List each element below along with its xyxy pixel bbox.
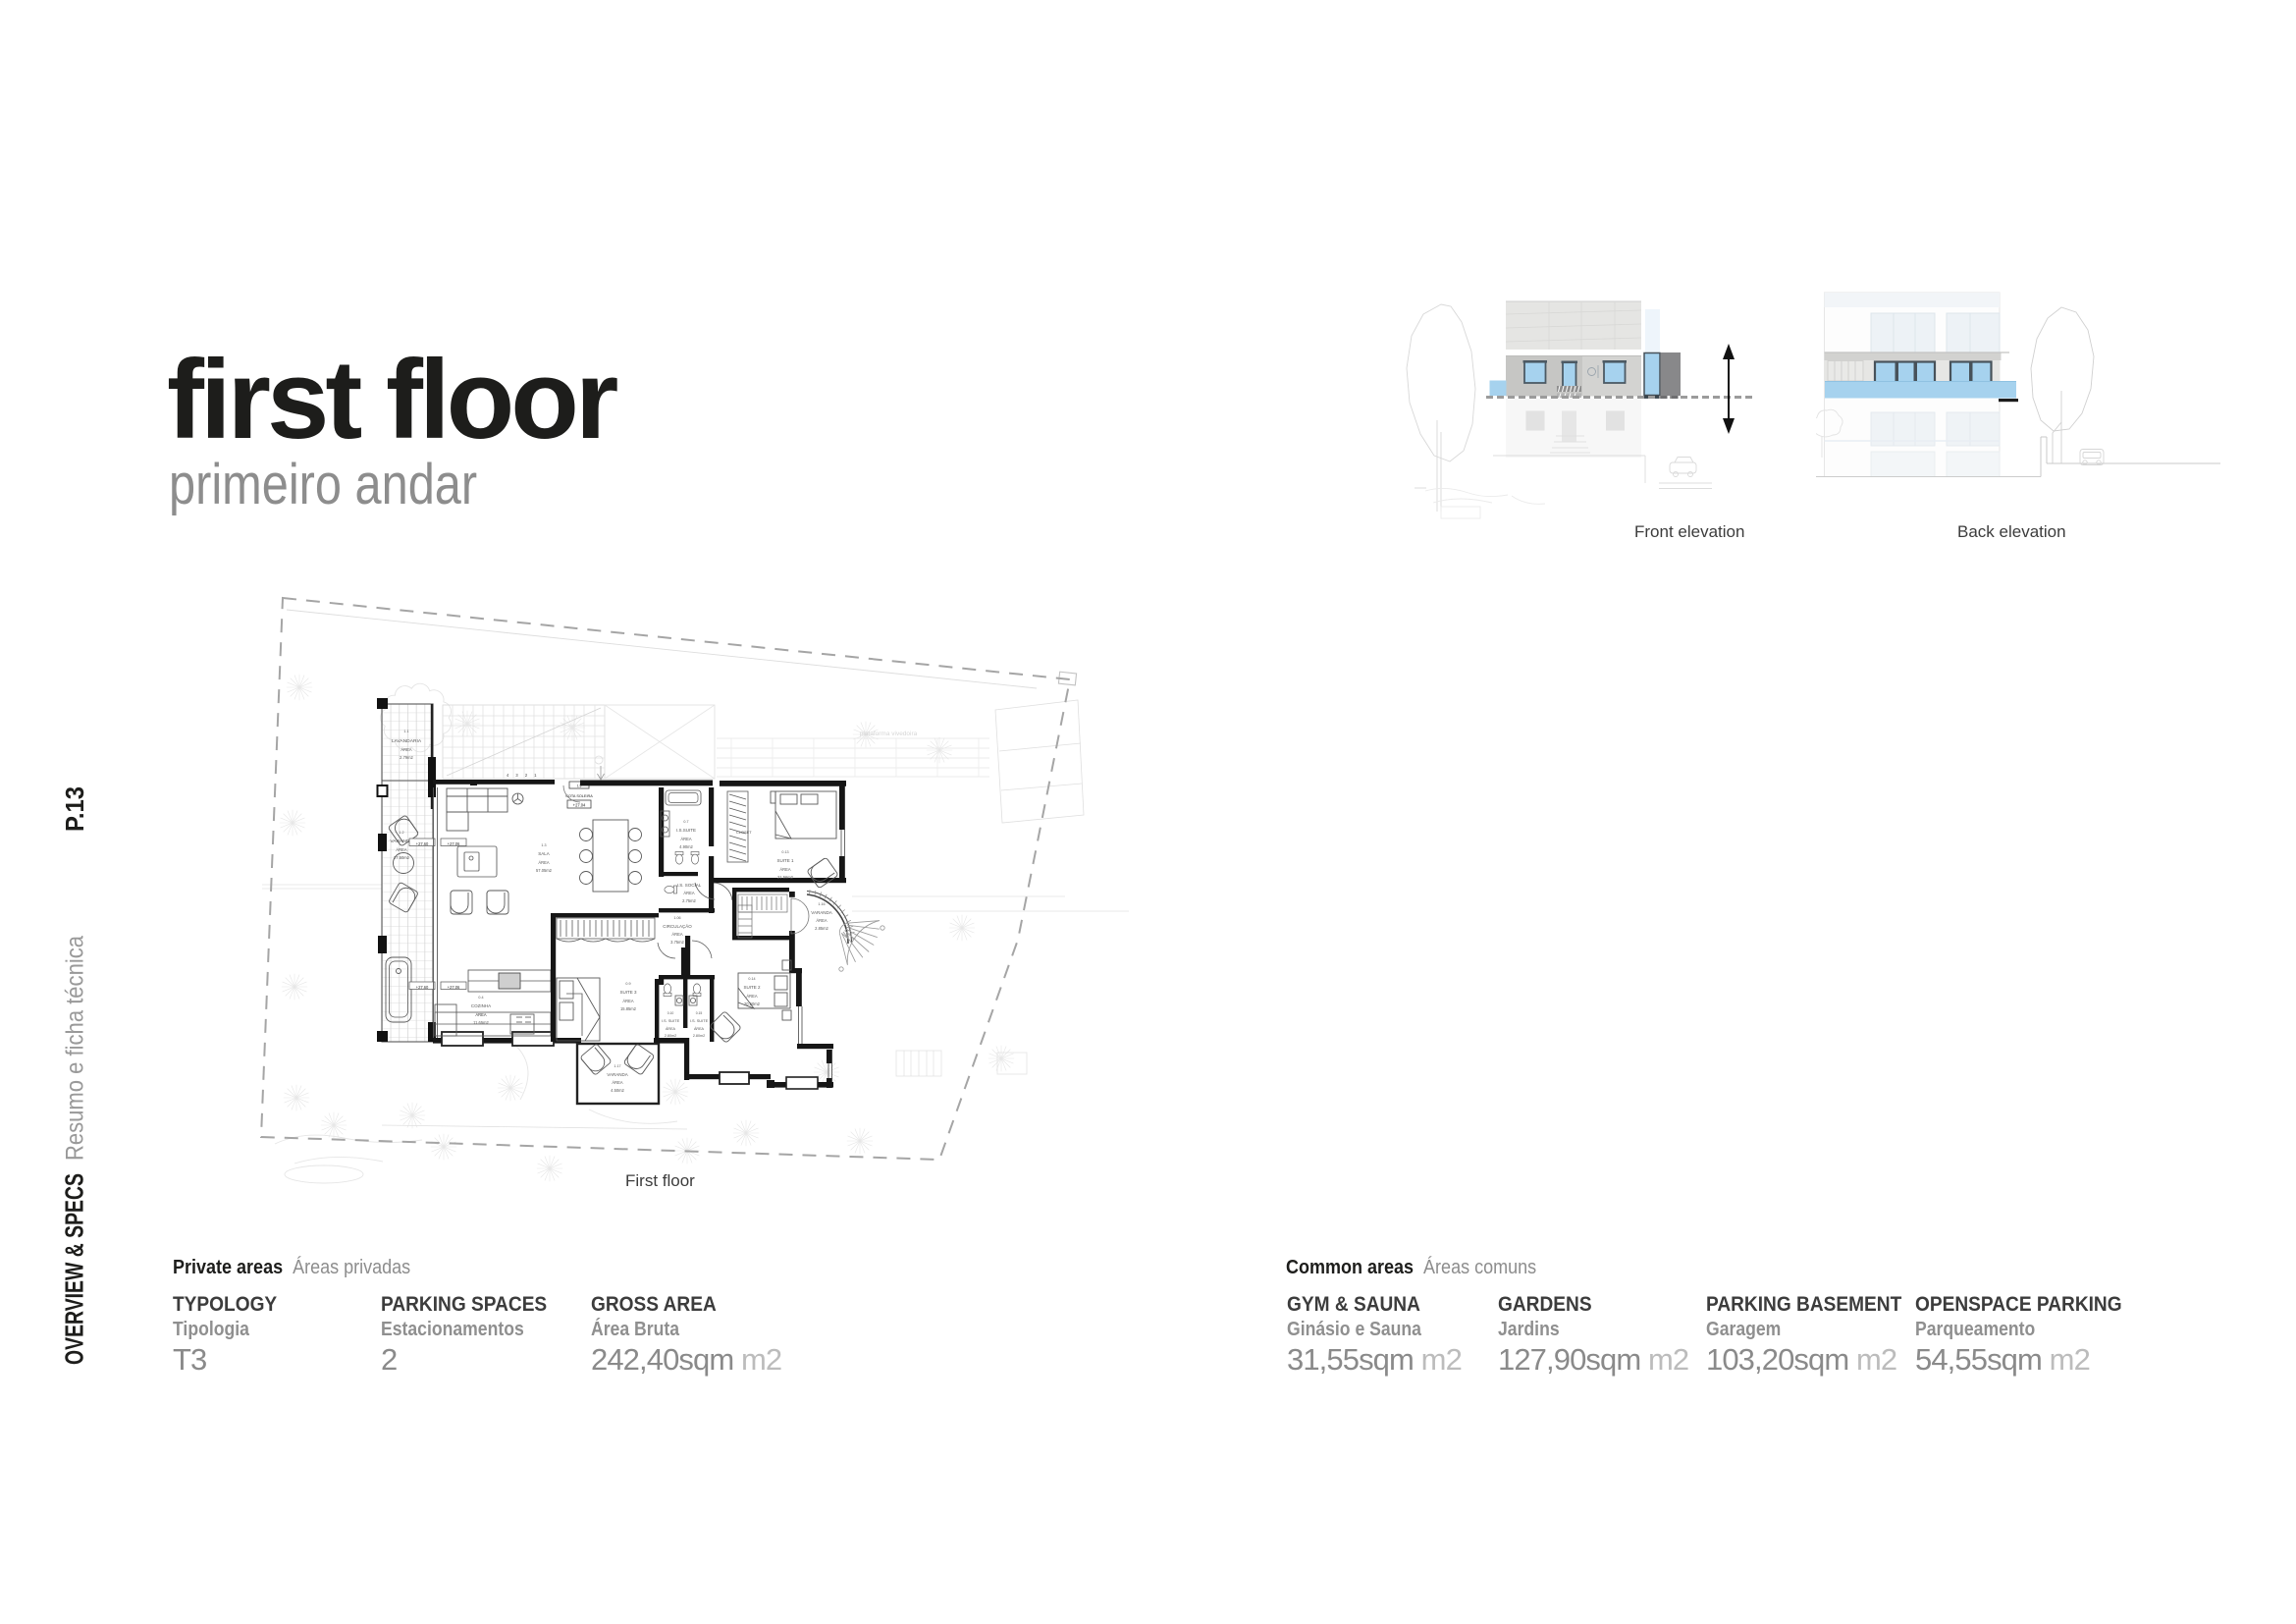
svg-text:1.1: 1.1 (403, 730, 408, 733)
svg-text:0.7: 0.7 (683, 820, 688, 824)
svg-text:VARANDA: VARANDA (811, 910, 831, 915)
svg-text:ÁREA: ÁREA (746, 994, 757, 999)
svg-text:COTA SOLEIRA: COTA SOLEIRA (565, 794, 593, 798)
svg-text:2.85m2: 2.85m2 (815, 926, 828, 931)
svg-text:+27.60: +27.60 (416, 985, 429, 990)
svg-text:I.S.SUITE: I.S.SUITE (676, 828, 696, 833)
svg-text:ÁREA: ÁREA (683, 891, 694, 895)
svg-text:2.75m2: 2.75m2 (682, 898, 696, 903)
svg-text:COZINHA: COZINHA (471, 1003, 491, 1008)
svg-text:ÁREA: ÁREA (612, 1080, 622, 1085)
svg-text:CIRCULAÇÃO: CIRCULAÇÃO (663, 923, 692, 929)
svg-text:SUITE 1: SUITE 1 (776, 858, 794, 863)
svg-text:VARANDA: VARANDA (607, 1072, 627, 1077)
svg-text:SUITE 3: SUITE 3 (619, 990, 637, 995)
svg-text:+27.06: +27.06 (448, 985, 460, 990)
svg-text:15.85m2: 15.85m2 (620, 1006, 637, 1011)
svg-text:ÁREA: ÁREA (622, 999, 633, 1003)
svg-text:P.13: P.13 (60, 786, 89, 832)
svg-text:ÁREA: ÁREA (666, 1027, 676, 1031)
svg-text:SALA: SALA (538, 851, 550, 856)
svg-text:I.S. SUITE: I.S. SUITE (662, 1018, 680, 1023)
svg-text:ÁREA: ÁREA (816, 918, 827, 923)
svg-text:20.50m2: 20.50m2 (744, 1001, 761, 1006)
svg-text:ÁREA: ÁREA (671, 932, 682, 937)
svg-text:plataforma vivedoira: plataforma vivedoira (860, 731, 918, 737)
svg-text:ÁREA: ÁREA (538, 860, 549, 865)
svg-text:ÁREA: ÁREA (779, 867, 790, 872)
svg-text:57.05m2: 57.05m2 (536, 868, 553, 873)
svg-text:21.56m2: 21.56m2 (777, 875, 794, 880)
svg-text:1.17: 1.17 (614, 1064, 620, 1068)
svg-text:11.65m2: 11.65m2 (473, 1020, 489, 1025)
svg-text:1.2: 1.2 (399, 831, 403, 835)
svg-text:1.06: 1.06 (673, 916, 680, 920)
svg-text:OVERVIEW & SPECS: OVERVIEW & SPECS (60, 1173, 89, 1365)
svg-text:2.80m2: 2.80m2 (665, 1034, 676, 1038)
svg-text:4.90m2: 4.90m2 (679, 844, 693, 849)
svg-text:I.S. SOCIAL: I.S. SOCIAL (677, 883, 702, 888)
svg-text:2.80m2: 2.80m2 (693, 1034, 705, 1038)
svg-text:2.79m2: 2.79m2 (400, 755, 413, 760)
svg-text:0.9: 0.9 (625, 982, 630, 986)
svg-text:LAVANDARIA: LAVANDARIA (392, 738, 422, 744)
svg-text:4.50m2: 4.50m2 (611, 1088, 624, 1093)
svg-text:0.10: 0.10 (667, 1011, 674, 1015)
svg-text:0.14: 0.14 (748, 977, 755, 981)
svg-text:3.75m2: 3.75m2 (670, 940, 684, 945)
svg-text:+27.06: +27.06 (448, 841, 460, 846)
svg-text:CLOSET: CLOSET (736, 830, 752, 835)
svg-text:1.16: 1.16 (818, 902, 825, 906)
svg-text:ÁREA: ÁREA (694, 1027, 705, 1031)
svg-text:+27.60: +27.60 (416, 841, 429, 846)
svg-text:ÁREA: ÁREA (400, 747, 411, 752)
svg-text:ÁREA: ÁREA (396, 847, 406, 852)
svg-text:SUITE 2: SUITE 2 (743, 985, 761, 990)
svg-text:1.3: 1.3 (541, 843, 546, 847)
svg-text:ÁREA: ÁREA (475, 1012, 486, 1017)
svg-text:4 3 2 1: 4 3 2 1 (507, 773, 540, 778)
svg-text:Resumo e ficha técnica: Resumo e ficha técnica (62, 936, 89, 1161)
svg-text:I.S. SUITE: I.S. SUITE (690, 1018, 709, 1023)
svg-text:0.15: 0.15 (696, 1011, 703, 1015)
svg-text:0.4: 0.4 (478, 996, 483, 1000)
svg-text:ÁREA: ÁREA (680, 837, 691, 841)
svg-text:0.13: 0.13 (781, 850, 788, 854)
svg-text:+27.04: +27.04 (573, 803, 586, 808)
